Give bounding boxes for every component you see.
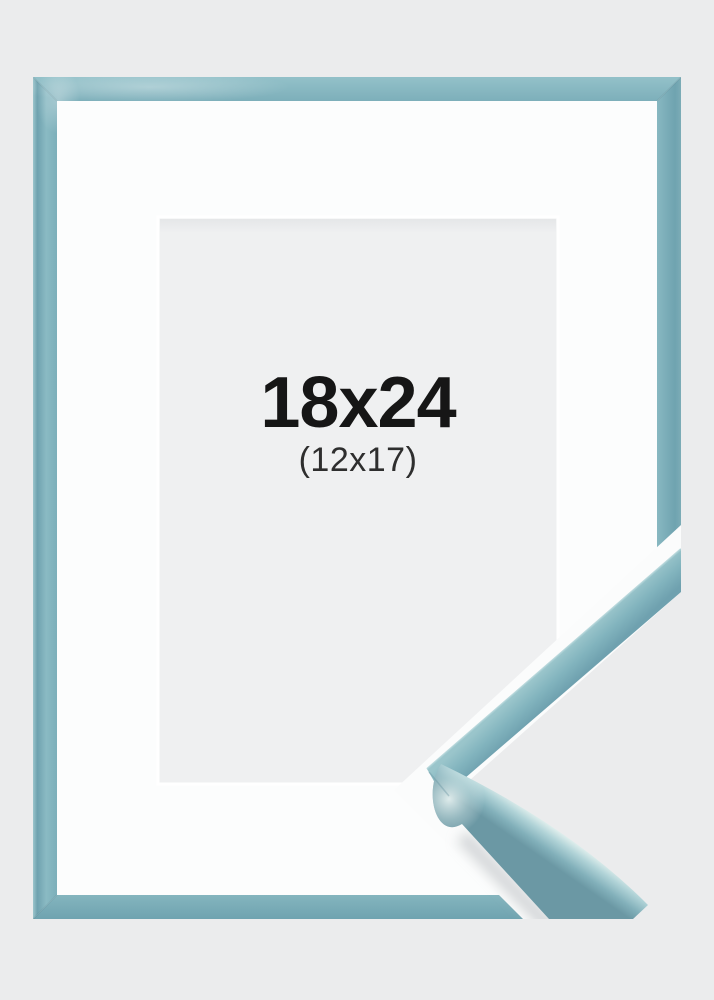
frame-illustration [0,0,714,1000]
frame-product-image: 18x24 (12x17) [0,0,714,1000]
